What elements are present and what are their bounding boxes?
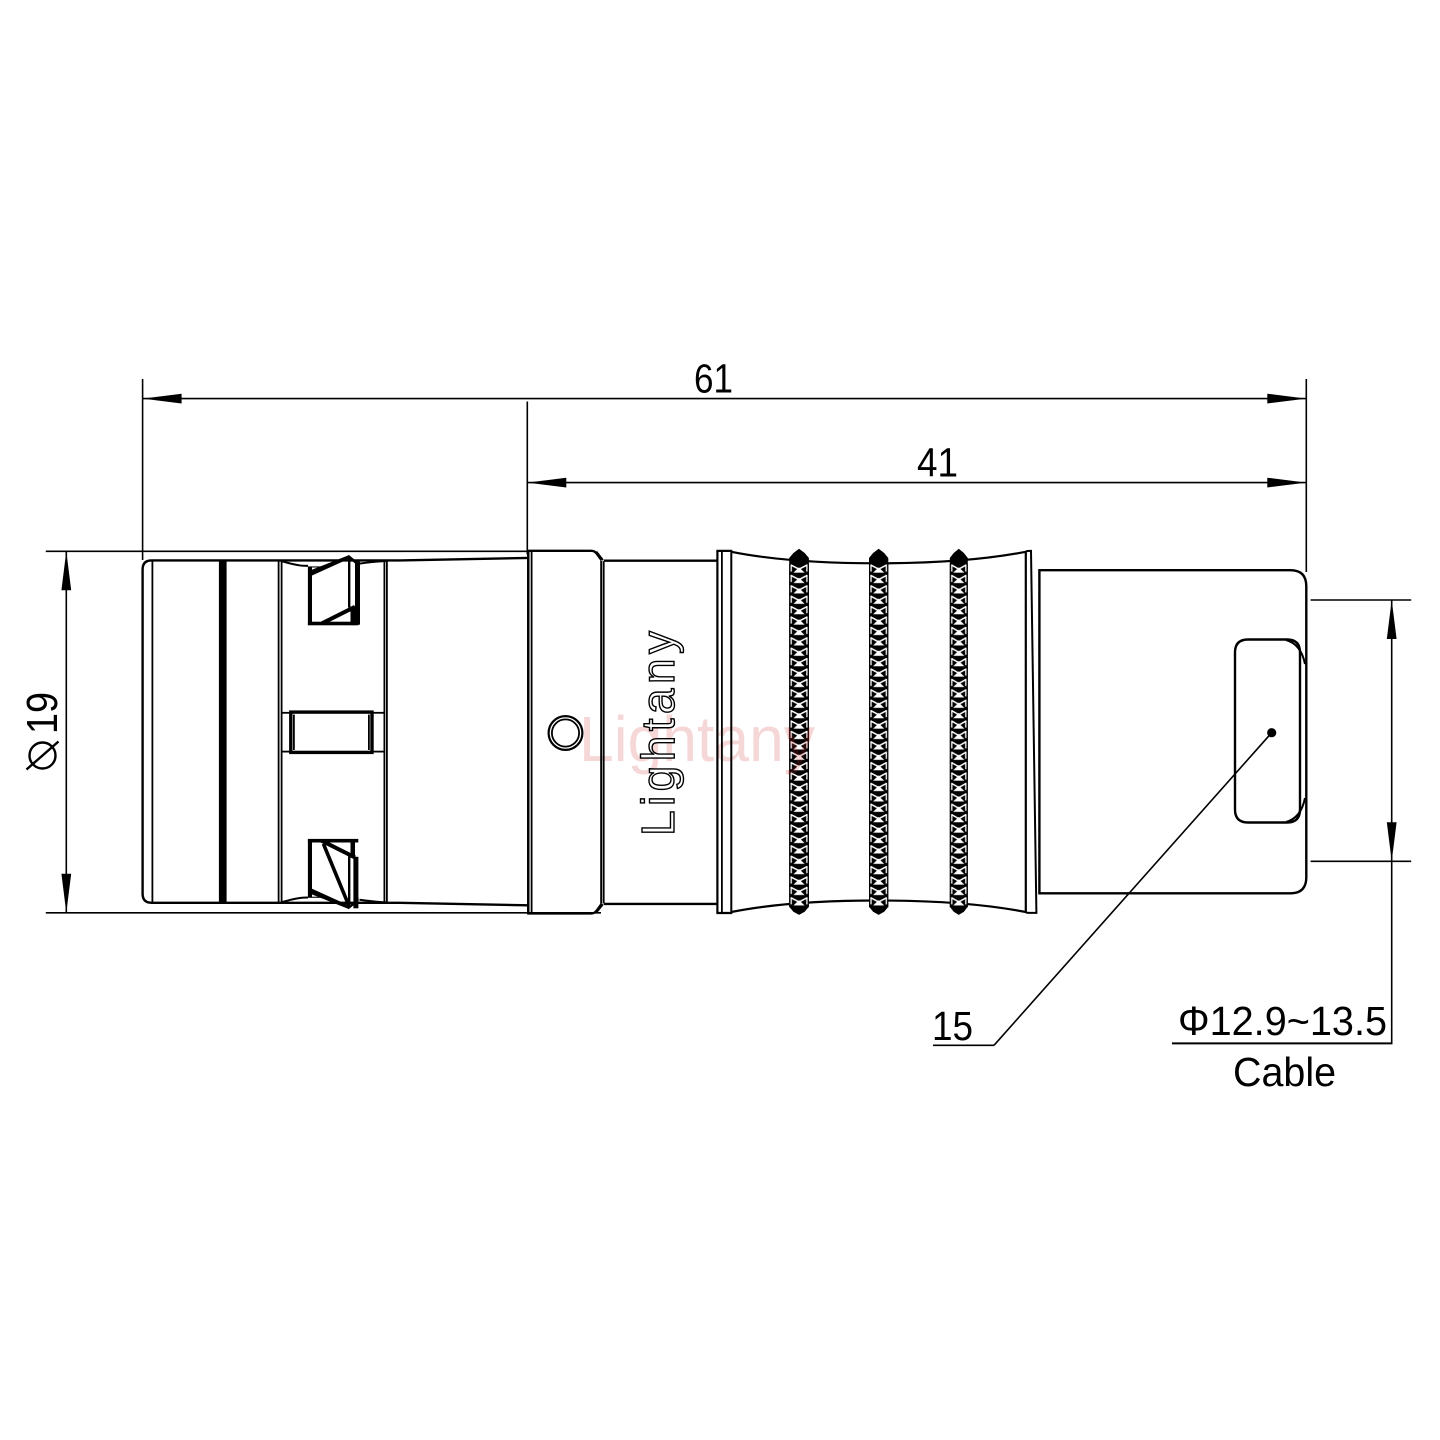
svg-text:Cable: Cable xyxy=(1233,1049,1336,1095)
svg-text:15: 15 xyxy=(932,1003,973,1049)
svg-text:61: 61 xyxy=(694,356,733,402)
svg-text:41: 41 xyxy=(917,440,958,486)
svg-text:Φ12.9~13.5: Φ12.9~13.5 xyxy=(1178,998,1387,1044)
svg-text:19: 19 xyxy=(18,692,67,734)
